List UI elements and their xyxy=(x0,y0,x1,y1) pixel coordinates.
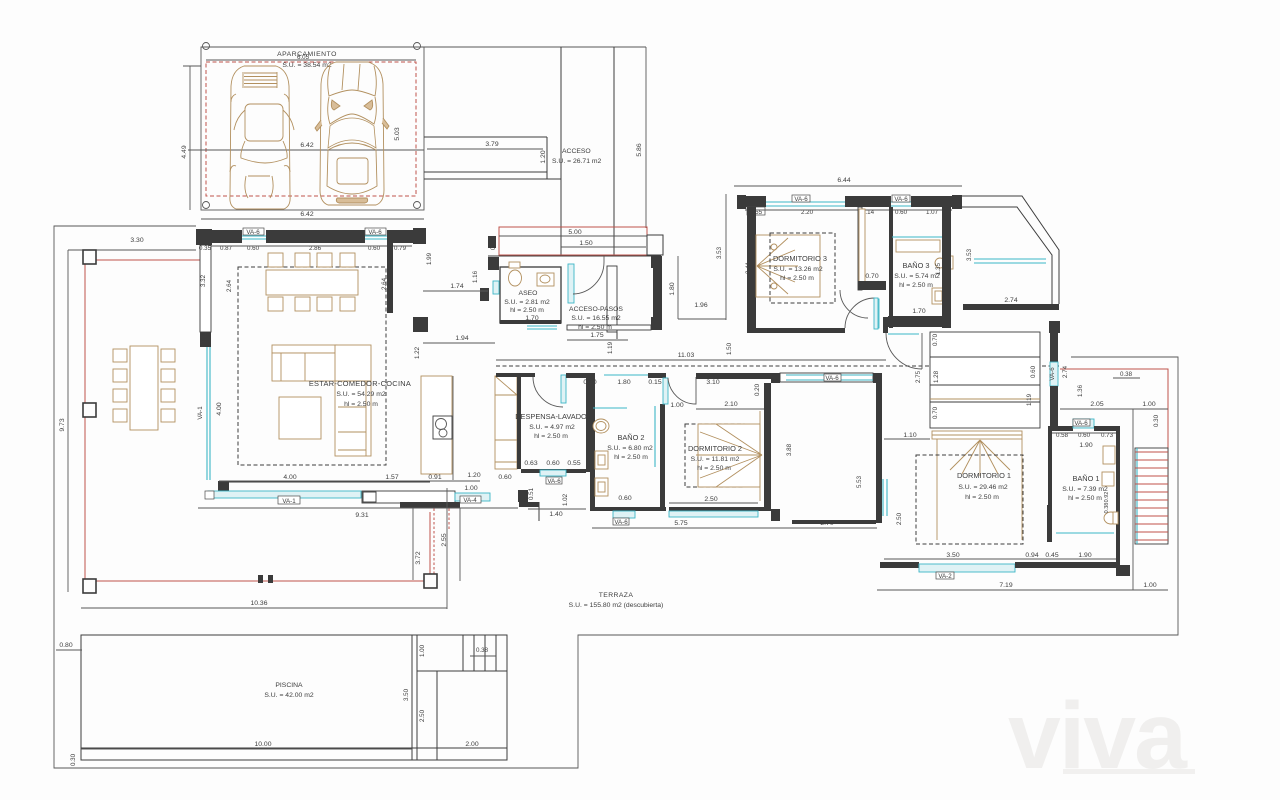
svg-text:0.38: 0.38 xyxy=(476,647,489,654)
svg-text:2.74: 2.74 xyxy=(1062,365,1069,378)
svg-text:3.10: 3.10 xyxy=(706,379,719,386)
svg-text:0.55: 0.55 xyxy=(567,460,580,467)
svg-text:DORMITORIO 2: DORMITORIO 2 xyxy=(688,444,742,453)
svg-text:10.00: 10.00 xyxy=(254,741,271,748)
svg-text:hl = 2.50 m: hl = 2.50 m xyxy=(965,494,999,501)
svg-text:BAÑO 2: BAÑO 2 xyxy=(617,433,644,442)
svg-text:3.41: 3.41 xyxy=(745,261,752,274)
svg-text:BAÑO 1: BAÑO 1 xyxy=(1072,474,1099,483)
svg-text:1.28: 1.28 xyxy=(933,370,940,383)
svg-text:hl = 2.50 m: hl = 2.50 m xyxy=(899,282,933,289)
svg-text:1.20: 1.20 xyxy=(467,472,480,479)
svg-text:4.00: 4.00 xyxy=(283,474,296,481)
svg-text:3.79: 3.79 xyxy=(485,141,498,148)
svg-text:5.03: 5.03 xyxy=(394,127,401,140)
svg-text:0.60: 0.60 xyxy=(1030,365,1037,378)
svg-text:hl = 2.50 m: hl = 2.50 m xyxy=(614,454,648,461)
svg-text:TERRAZA: TERRAZA xyxy=(599,592,634,599)
svg-text:0.45: 0.45 xyxy=(1045,552,1058,559)
svg-text:9.31: 9.31 xyxy=(355,512,368,519)
svg-text:1.40: 1.40 xyxy=(549,511,562,518)
svg-text:1.19: 1.19 xyxy=(607,341,614,354)
svg-text:0.60: 0.60 xyxy=(546,460,559,467)
svg-text:2.50: 2.50 xyxy=(896,512,903,525)
svg-text:3.50: 3.50 xyxy=(946,552,959,559)
svg-text:1.00: 1.00 xyxy=(419,644,426,657)
svg-text:S.U. = 4.97 m2: S.U. = 4.97 m2 xyxy=(529,424,575,431)
svg-text:3.72: 3.72 xyxy=(415,551,422,564)
svg-text:1.74: 1.74 xyxy=(450,283,463,290)
svg-text:1.50: 1.50 xyxy=(726,342,733,355)
svg-text:10.36: 10.36 xyxy=(250,600,267,607)
svg-text:S.U. = 6.80 m2: S.U. = 6.80 m2 xyxy=(607,445,653,452)
svg-text:BAÑO 3: BAÑO 3 xyxy=(902,261,929,270)
svg-text:0.15: 0.15 xyxy=(648,379,661,386)
svg-text:1.90: 1.90 xyxy=(1078,552,1091,559)
svg-text:6.42: 6.42 xyxy=(300,142,313,149)
svg-text:2.05: 2.05 xyxy=(1090,401,1103,408)
svg-text:S.U. = 13.26 m2: S.U. = 13.26 m2 xyxy=(773,266,823,273)
svg-text:7.19: 7.19 xyxy=(999,582,1012,589)
svg-text:1.90: 1.90 xyxy=(1079,442,1092,449)
svg-text:1.22: 1.22 xyxy=(414,346,421,359)
svg-text:S.U. = 38.54 m2: S.U. = 38.54 m2 xyxy=(282,62,332,69)
svg-text:1.80: 1.80 xyxy=(669,282,676,295)
svg-text:VA-6: VA-6 xyxy=(368,229,382,236)
svg-text:1.02: 1.02 xyxy=(562,493,569,506)
svg-text:DORMITORIO 3: DORMITORIO 3 xyxy=(773,254,827,263)
svg-text:VA-6: VA-6 xyxy=(547,478,561,485)
svg-text:6.42: 6.42 xyxy=(300,211,313,218)
svg-text:hl = 2.50 m: hl = 2.50 m xyxy=(697,465,731,472)
svg-text:5.53: 5.53 xyxy=(856,475,863,488)
svg-text:0.63: 0.63 xyxy=(524,460,537,467)
svg-text:1.99: 1.99 xyxy=(426,252,433,265)
svg-text:2.55: 2.55 xyxy=(441,533,448,546)
svg-text:0.80: 0.80 xyxy=(59,642,72,649)
svg-text:2.74: 2.74 xyxy=(1004,297,1017,304)
svg-text:2.50: 2.50 xyxy=(704,496,717,503)
svg-text:2.31: 2.31 xyxy=(201,331,208,344)
svg-text:S.U. = 2.81 m2: S.U. = 2.81 m2 xyxy=(504,299,550,306)
svg-text:4.00: 4.00 xyxy=(216,402,223,415)
svg-text:3.50: 3.50 xyxy=(403,688,410,701)
svg-text:DESPENSA-LAVADO: DESPENSA-LAVADO xyxy=(515,412,587,421)
svg-text:VA-1: VA-1 xyxy=(197,406,204,420)
svg-text:1.00: 1.00 xyxy=(464,485,477,492)
svg-text:1.70: 1.70 xyxy=(525,315,538,322)
svg-text:0.91: 0.91 xyxy=(428,474,441,481)
svg-text:S.U. = 16.55 m2: S.U. = 16.55 m2 xyxy=(571,315,621,322)
svg-text:ESTAR-COMEDOR-COCINA: ESTAR-COMEDOR-COCINA xyxy=(309,379,411,388)
svg-text:1.50: 1.50 xyxy=(579,240,592,247)
svg-text:ASEO: ASEO xyxy=(519,290,538,297)
svg-text:1.70: 1.70 xyxy=(912,308,925,315)
svg-text:S.U. = 54.29 m2: S.U. = 54.29 m2 xyxy=(336,391,386,398)
svg-text:3.53: 3.53 xyxy=(716,246,723,259)
svg-text:PISCINA: PISCINA xyxy=(275,682,303,689)
svg-text:2.50: 2.50 xyxy=(419,709,426,722)
svg-text:VA-6: VA-6 xyxy=(825,375,839,382)
svg-text:0.70: 0.70 xyxy=(865,273,878,280)
svg-text:hl = 2.50 m: hl = 2.50 m xyxy=(578,324,612,331)
svg-text:0.92: 0.92 xyxy=(1104,492,1110,503)
svg-text:hl = 2.50 m: hl = 2.50 m xyxy=(1068,495,1102,502)
svg-text:VA-2: VA-2 xyxy=(938,573,952,580)
svg-text:0.20: 0.20 xyxy=(754,383,761,396)
svg-text:VA-6: VA-6 xyxy=(1049,367,1056,381)
svg-text:1.94: 1.94 xyxy=(455,335,468,342)
svg-text:5.00: 5.00 xyxy=(568,229,581,236)
svg-text:0.60: 0.60 xyxy=(618,495,631,502)
svg-text:VA-1: VA-1 xyxy=(282,498,296,505)
svg-text:S.U. = 5.74 m2: S.U. = 5.74 m2 xyxy=(894,273,940,280)
svg-text:VA-6: VA-6 xyxy=(794,196,808,203)
svg-text:0.51: 0.51 xyxy=(528,487,535,500)
svg-text:5.86: 5.86 xyxy=(636,143,643,156)
svg-text:5.75: 5.75 xyxy=(674,520,687,527)
svg-text:S.U. = 26.71 m2: S.U. = 26.71 m2 xyxy=(552,158,602,165)
svg-text:hl = 2.50 m: hl = 2.50 m xyxy=(344,401,378,408)
svg-text:0.38: 0.38 xyxy=(1120,371,1133,378)
svg-text:1.00: 1.00 xyxy=(670,402,683,409)
svg-text:1.57: 1.57 xyxy=(385,474,398,481)
svg-text:1.16: 1.16 xyxy=(472,270,479,283)
svg-text:1.35: 1.35 xyxy=(935,262,942,275)
svg-text:0.70: 0.70 xyxy=(932,333,939,346)
svg-text:4.49: 4.49 xyxy=(181,145,188,158)
svg-text:VA-6: VA-6 xyxy=(246,229,260,236)
svg-text:VA-6: VA-6 xyxy=(1074,420,1088,427)
svg-text:ACCESO-PASOS: ACCESO-PASOS xyxy=(569,306,623,313)
svg-text:S.U. = 42.00 m2: S.U. = 42.00 m2 xyxy=(264,692,314,699)
svg-text:2.64: 2.64 xyxy=(226,279,233,292)
svg-text:1.75: 1.75 xyxy=(590,332,603,339)
svg-text:0.30: 0.30 xyxy=(70,753,77,766)
svg-text:1.00: 1.00 xyxy=(1142,401,1155,408)
svg-text:hl = 2.50 m: hl = 2.50 m xyxy=(534,433,568,440)
svg-text:9.73: 9.73 xyxy=(59,418,66,431)
svg-text:1.36: 1.36 xyxy=(1077,384,1084,397)
svg-text:S.U. = 155.80 m2 (descubierta): S.U. = 155.80 m2 (descubierta) xyxy=(569,602,664,609)
svg-text:1.20: 1.20 xyxy=(540,150,547,163)
svg-text:S.U. = 29.46 m2: S.U. = 29.46 m2 xyxy=(958,484,1008,491)
svg-text:1.10: 1.10 xyxy=(903,432,916,439)
svg-text:0.38: 0.38 xyxy=(1104,503,1110,514)
svg-text:3.53: 3.53 xyxy=(966,248,973,261)
svg-text:1.19: 1.19 xyxy=(1026,393,1033,406)
svg-text:DORMITORIO 1: DORMITORIO 1 xyxy=(957,471,1011,480)
svg-text:11.03: 11.03 xyxy=(678,352,695,359)
svg-text:1.96: 1.96 xyxy=(694,302,707,309)
svg-text:2.64: 2.64 xyxy=(381,277,388,290)
svg-text:2.75: 2.75 xyxy=(915,370,922,383)
svg-text:0.94: 0.94 xyxy=(1025,552,1038,559)
svg-text:0.35: 0.35 xyxy=(199,245,212,252)
svg-text:0.20: 0.20 xyxy=(583,379,596,386)
svg-text:6.05: 6.05 xyxy=(297,54,310,61)
svg-text:VA-6: VA-6 xyxy=(614,519,628,526)
svg-text:0.70: 0.70 xyxy=(932,406,939,419)
svg-text:VA-4: VA-4 xyxy=(463,497,477,504)
svg-text:6.44: 6.44 xyxy=(837,177,850,184)
svg-text:S.U. = 7.39 m2: S.U. = 7.39 m2 xyxy=(1062,486,1108,493)
svg-text:hl = 2.50 m: hl = 2.50 m xyxy=(510,307,544,314)
svg-text:2.10: 2.10 xyxy=(724,401,737,408)
svg-text:3.30: 3.30 xyxy=(130,237,143,244)
svg-text:3.32: 3.32 xyxy=(200,274,207,287)
svg-text:1.80: 1.80 xyxy=(617,379,630,386)
svg-text:3.88: 3.88 xyxy=(786,443,793,456)
svg-text:2.00: 2.00 xyxy=(465,741,478,748)
svg-text:0.60: 0.60 xyxy=(498,474,511,481)
svg-text:0.30: 0.30 xyxy=(1153,414,1160,427)
svg-text:S.U. = 11.81 m2: S.U. = 11.81 m2 xyxy=(691,456,740,463)
svg-text:hl = 2.50 m: hl = 2.50 m xyxy=(780,275,814,282)
svg-text:1.00: 1.00 xyxy=(1143,582,1156,589)
svg-text:VA-6: VA-6 xyxy=(894,196,908,203)
svg-text:ACCESO: ACCESO xyxy=(562,148,591,155)
